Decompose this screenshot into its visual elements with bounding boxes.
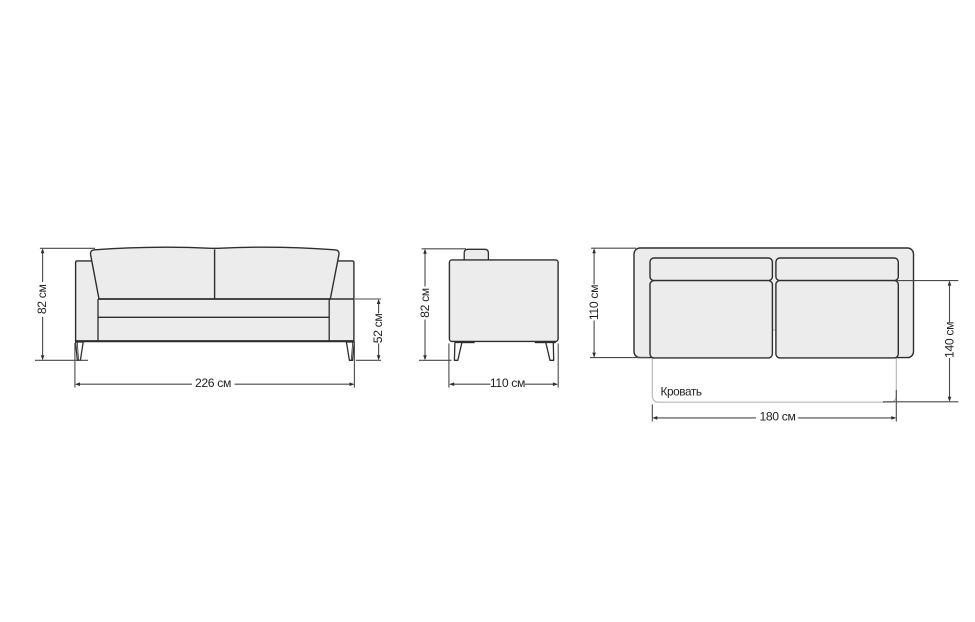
svg-text:110 см: 110 см [490,376,525,390]
svg-text:82 см: 82 см [418,288,432,318]
svg-text:180 см: 180 см [759,409,795,423]
svg-text:52 см: 52 см [371,314,385,344]
svg-text:226 см: 226 см [195,376,231,390]
svg-text:110 см: 110 см [587,285,601,320]
svg-text:Кровать: Кровать [661,385,702,399]
svg-text:82 см: 82 см [35,284,49,314]
svg-text:140 см: 140 см [943,322,957,358]
